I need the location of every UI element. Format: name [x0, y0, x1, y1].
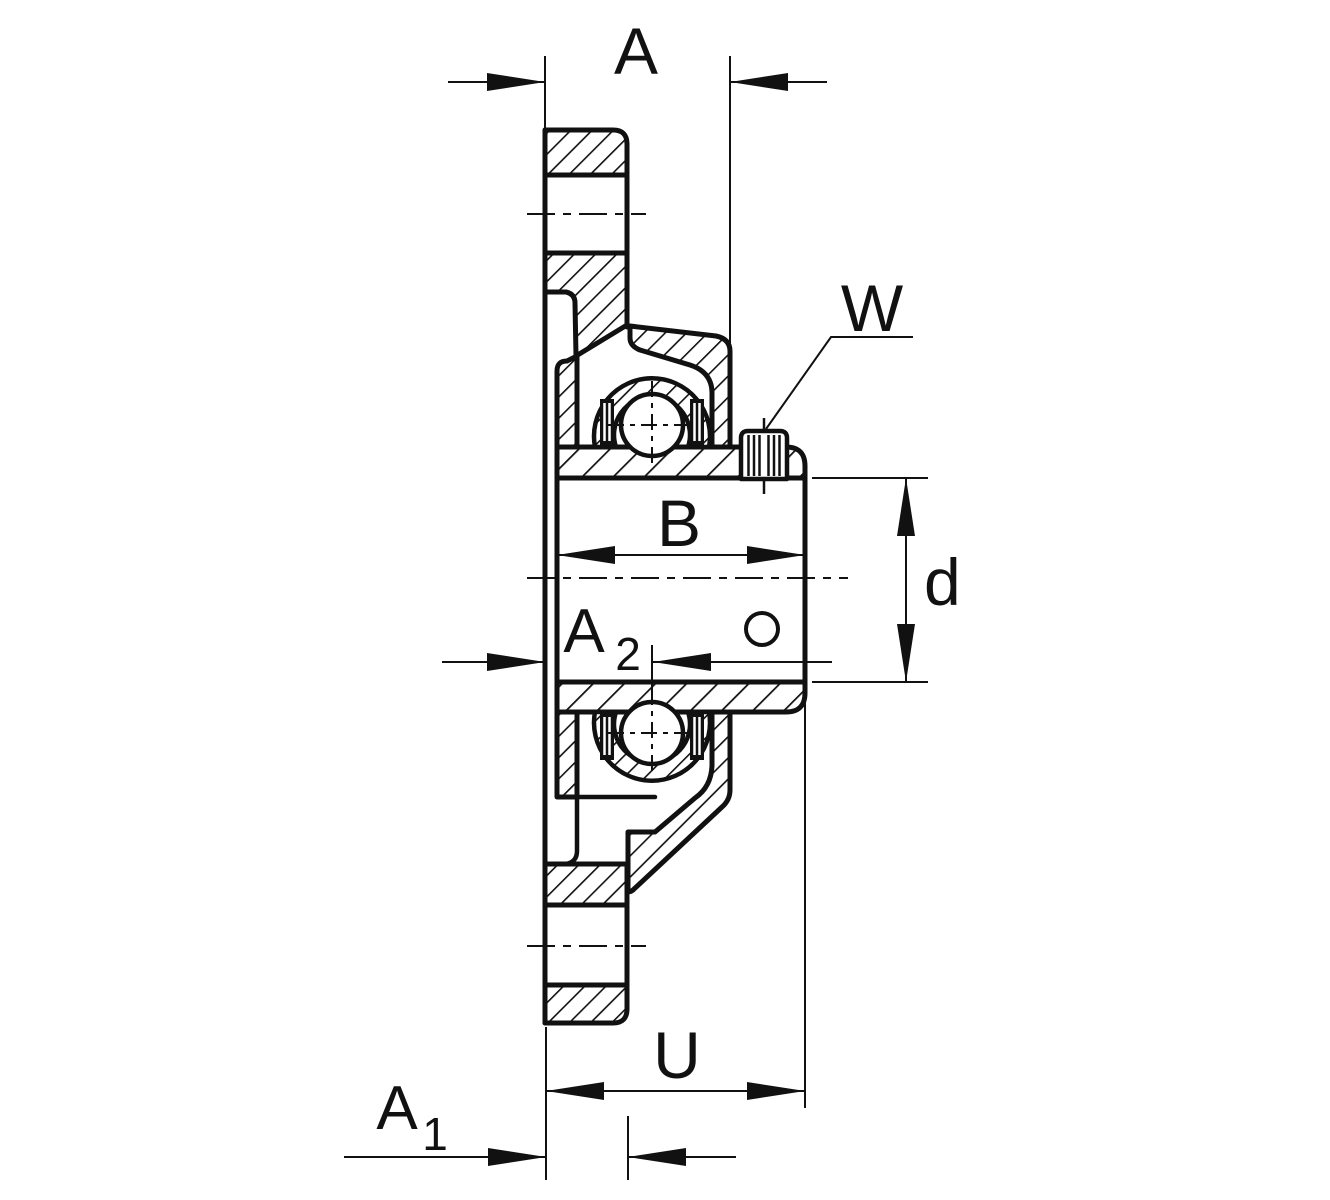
dim-label-a1-sub: 1	[422, 1108, 448, 1160]
seal-top-left	[600, 399, 614, 446]
inner-ring-bottom-band	[557, 682, 805, 712]
seal-bottom-right	[690, 713, 704, 760]
dim-label-a2-sub: 2	[615, 628, 641, 680]
dim-label-w: W	[841, 271, 904, 345]
seal-top-right	[690, 399, 704, 446]
housing-lower-left-wall	[557, 712, 577, 797]
dim-label-d: d	[924, 545, 961, 619]
housing-upper-left-wall	[557, 356, 577, 447]
flange-top-tab	[545, 130, 627, 175]
flange-bottom-tab	[545, 985, 627, 1023]
dim-label-a2: A	[563, 597, 605, 666]
dim-label-b: B	[657, 486, 701, 560]
flange-lower-block	[545, 864, 627, 905]
dim-label-a1: A	[376, 1074, 418, 1143]
seal-bottom-left	[600, 713, 614, 760]
dim-label-u: U	[653, 1018, 701, 1092]
dim-label-a: A	[614, 14, 658, 88]
technical-drawing-page: A W B d A 2 U A 1	[0, 0, 1330, 1200]
bearing-cross-section-drawing: A W B d A 2 U A 1	[0, 0, 1330, 1200]
lube-hole	[746, 613, 778, 645]
